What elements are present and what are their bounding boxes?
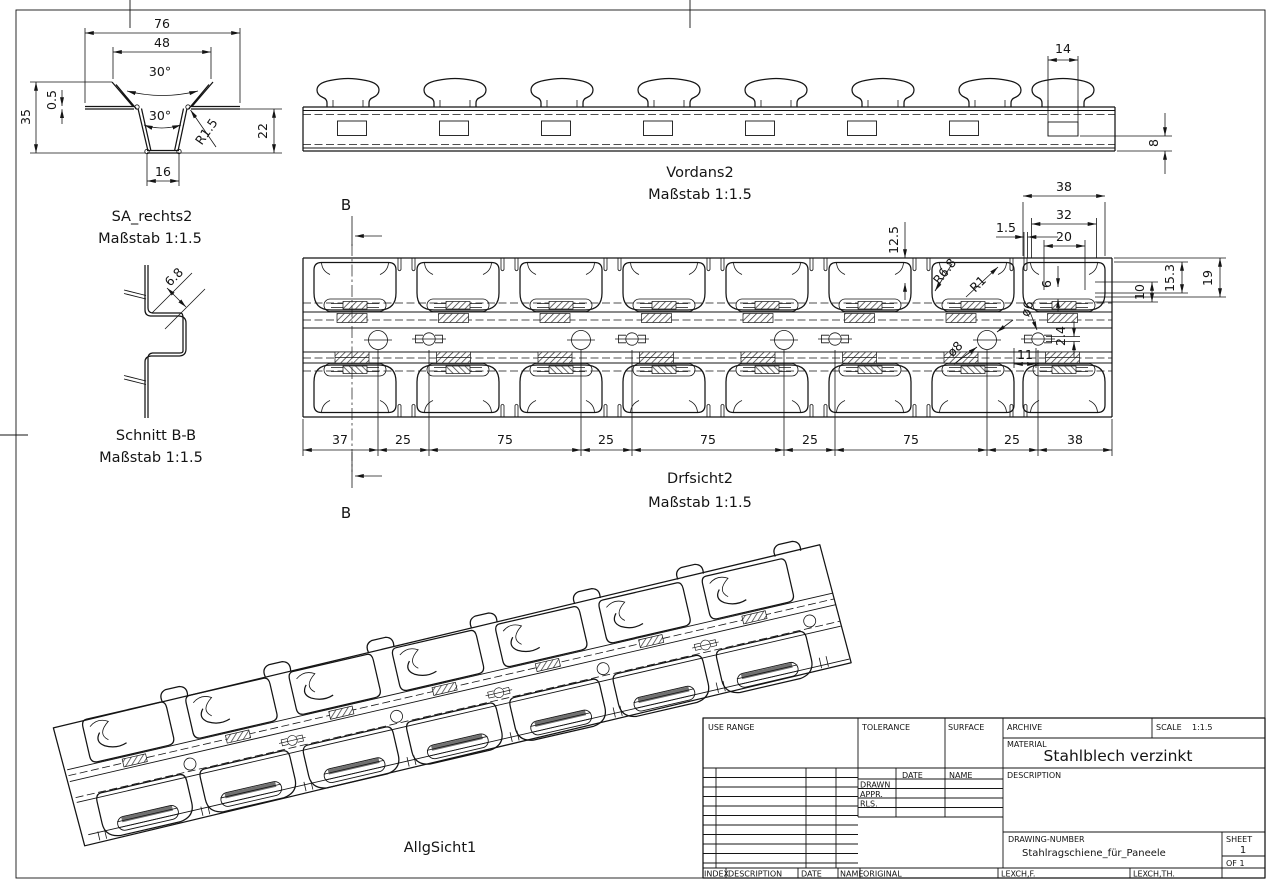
- view-sa-rechts2: 76 48 30° 30° 0.5 35 R1.5 22 16 SA_recht…: [18, 16, 282, 247]
- tb-sheet-label: SHEET: [1226, 835, 1252, 844]
- vordans2-linework: [303, 79, 1115, 152]
- dim-chain-37: 37: [332, 432, 348, 447]
- dim-drf-32: 32: [1056, 207, 1072, 222]
- dim-drf-6: 6: [1039, 280, 1054, 288]
- view-scale-sa-rechts2: Maßstab 1:1.5: [98, 231, 202, 247]
- view-title-allgsicht1: AllgSicht1: [404, 840, 477, 856]
- view-scale-drfsicht2: Maßstab 1:1.5: [648, 495, 752, 511]
- tb-date2-label: DATE: [801, 870, 822, 879]
- tb-rls-label: RLS.: [860, 800, 878, 809]
- view-schnitt-bb: 6.8 Schnitt B-B Maßstab 1:1.5: [99, 264, 205, 466]
- dim-drf-11: 11: [1017, 347, 1033, 362]
- dim-drf-38: 38: [1056, 179, 1072, 194]
- view-scale-vordans2: Maßstab 1:1.5: [648, 187, 752, 203]
- dim-vordans2-8: 8: [1146, 139, 1161, 147]
- dim-sa-16: 16: [155, 164, 171, 179]
- view-drfsicht2: B B 37 25 75 25 75 25 75 25 38 38 32 20 …: [303, 179, 1226, 522]
- dim-drf-r68: R6.8: [930, 255, 959, 287]
- dim-drf-d6: ø6: [1017, 299, 1036, 319]
- dim-vordans2-14: 14: [1055, 41, 1071, 56]
- title-block-grid: [703, 718, 1265, 878]
- view-title-drfsicht2: Drfsicht2: [667, 471, 733, 487]
- dim-sa-r15: R1.5: [192, 115, 221, 147]
- dim-drf-19: 19: [1200, 270, 1215, 286]
- dim-sa-76: 76: [154, 16, 170, 31]
- sa-dimensions: 76 48 30° 30° 0.5 35 R1.5 22 16: [18, 16, 282, 186]
- schnitt-dimensions: 6.8: [152, 264, 205, 329]
- tb-sheet-value: 1: [1240, 845, 1246, 856]
- section-marker-b-bottom: B: [341, 504, 351, 522]
- dim-drf-10: 10: [1132, 284, 1147, 300]
- dim-chain-25b: 25: [598, 432, 614, 447]
- dim-drf-r1: R1: [967, 273, 989, 295]
- dim-chain-75b: 75: [700, 432, 716, 447]
- dim-sa-48: 48: [154, 35, 170, 50]
- dim-drf-20: 20: [1056, 229, 1072, 244]
- tb-use-range: USE RANGE: [708, 723, 754, 732]
- dim-chain-75a: 75: [497, 432, 513, 447]
- view-vordans2: 14 8 Vordans2 Maßstab 1:1.5: [303, 41, 1172, 203]
- tb-original-label: ORIGINAL: [863, 870, 902, 879]
- tb-drawing-number-value: Stahlragschiene_für_Paneele: [1022, 848, 1166, 859]
- tb-description2-label: DESCRIPTION: [728, 870, 782, 879]
- drfsicht2-linework: [303, 258, 1112, 417]
- section-marker-b-top: B: [341, 196, 351, 214]
- dim-sa-30-top: 30°: [149, 64, 171, 79]
- tb-description-label: DESCRIPTION: [1007, 771, 1061, 780]
- dim-chain-75c: 75: [903, 432, 919, 447]
- view-title-schnitt-bb: Schnitt B-B: [116, 428, 196, 444]
- tb-drawing-number-label: DRAWING-NUMBER: [1008, 835, 1085, 844]
- dim-schnitt-68: 6.8: [161, 264, 186, 289]
- tb-index-label: INDEX: [704, 870, 730, 879]
- tb-material-label: MATERIAL: [1007, 740, 1047, 749]
- tb-date-label: DATE: [902, 771, 923, 780]
- dim-drf-153: 15.3: [1162, 264, 1177, 292]
- tb-surface: SURFACE: [948, 723, 984, 732]
- dim-chain-38: 38: [1067, 432, 1083, 447]
- drawing-canvas: 76 48 30° 30° 0.5 35 R1.5 22 16 SA_recht…: [0, 0, 1280, 896]
- dim-drf-15: 1.5: [996, 220, 1016, 235]
- view-scale-schnitt-bb: Maßstab 1:1.5: [99, 450, 203, 466]
- dim-chain-25a: 25: [395, 432, 411, 447]
- dim-sa-22: 22: [255, 123, 270, 139]
- dim-sa-35: 35: [18, 109, 33, 125]
- tb-name-label: NAME: [949, 771, 972, 780]
- dim-chain-25d: 25: [1004, 432, 1020, 447]
- tb-appr-label: APPR.: [860, 790, 883, 799]
- tb-scale-value: 1:1.5: [1192, 723, 1213, 732]
- dim-chain-25c: 25: [802, 432, 818, 447]
- tb-archive: ARCHIVE: [1007, 723, 1042, 732]
- tb-scale-label: SCALE: [1156, 723, 1182, 732]
- tb-check1: LEXCH,F.: [1001, 870, 1035, 879]
- tb-tolerance: TOLERANCE: [861, 723, 910, 732]
- tb-drawn-label: DRAWN: [860, 781, 890, 790]
- view-title-sa-rechts2: SA_rechts2: [112, 209, 193, 225]
- tb-check2: LEXCH,TH.: [1133, 870, 1175, 879]
- dim-drf-24: 2.4: [1053, 326, 1068, 346]
- allgsicht1-linework: [50, 535, 853, 847]
- title-block: USE RANGE TOLERANCE SURFACE ARCHIVE SCAL…: [703, 718, 1265, 879]
- title-block-text: USE RANGE TOLERANCE SURFACE ARCHIVE SCAL…: [704, 723, 1252, 879]
- view-allgsicht1: AllgSicht1: [50, 535, 853, 856]
- dim-sa-30-bottom: 30°: [149, 108, 171, 123]
- tb-of-value: OF 1: [1226, 859, 1245, 868]
- tb-name2-label: NAME: [840, 870, 863, 879]
- dim-sa-05: 0.5: [44, 90, 59, 110]
- tb-material-value: Stahlblech verzinkt: [1044, 747, 1193, 765]
- view-title-vordans2: Vordans2: [666, 165, 733, 181]
- dim-drf-125: 12.5: [886, 226, 901, 254]
